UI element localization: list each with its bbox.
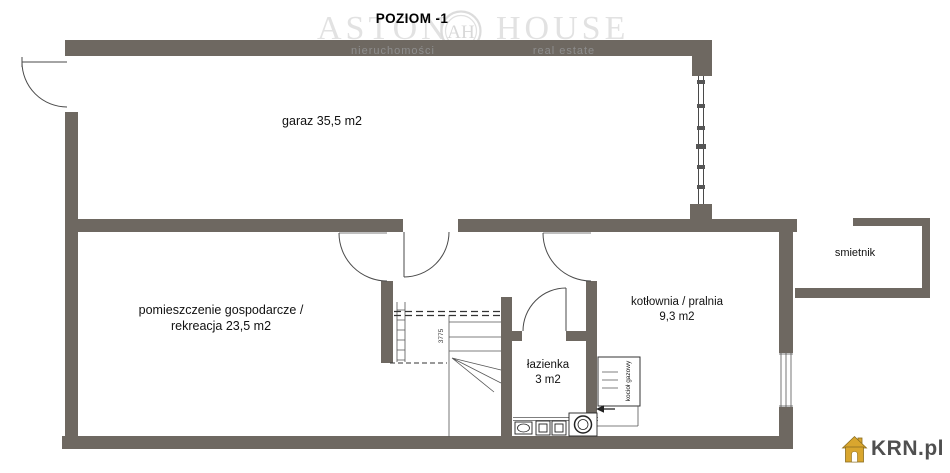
- wall-right-lower: [779, 407, 793, 436]
- gas-boiler-label: kocioł gazowy: [625, 360, 632, 401]
- stair-winders: [452, 358, 501, 392]
- watermark-tagline-right: real estate: [533, 45, 595, 57]
- label-garage: garaz 35,5 m2: [282, 113, 362, 129]
- window-right-wall: [779, 353, 793, 407]
- garage-door-jamb-bottom: [690, 204, 712, 219]
- stair-upper-flight-hatches: [397, 310, 405, 360]
- door-hall-boiler: [543, 233, 591, 281]
- label-boiler-line1: kotłownia / pralnia: [631, 295, 723, 310]
- label-boiler-laundry: kotłownia / pralnia 9,3 m2: [631, 295, 723, 325]
- gas-boiler-unit: kocioł gazowy: [596, 357, 640, 426]
- door-exterior-top-left: [22, 57, 67, 107]
- label-utility-line2: rekreacja 23,5 m2: [139, 318, 304, 334]
- house-icon: [841, 433, 868, 464]
- wall-mid-right: [458, 219, 797, 232]
- floorplan-svg: 3775 kocioł gazowy: [0, 0, 950, 473]
- garage-gate-ticks: [696, 80, 706, 189]
- door-hall-utility: [339, 233, 387, 281]
- appliance-2-inner: [555, 424, 563, 432]
- wall-bottom: [62, 436, 793, 449]
- site-logo-text: KRN.pl: [871, 437, 944, 461]
- wall-bathroom-boiler: [586, 281, 597, 417]
- watermark-tagline-left: nieruchomości: [351, 45, 435, 57]
- floorplan-page: ASTON HOUSE AH: [0, 0, 950, 473]
- wall-utility-hall: [381, 281, 393, 363]
- gas-boiler-box: [598, 357, 640, 406]
- label-utility: pomieszczenie gospodarcze / rekreacja 23…: [139, 302, 304, 334]
- stair-headroom-dashed: [394, 312, 500, 316]
- wall-left: [65, 112, 78, 448]
- appliance-1-inner: [539, 424, 547, 432]
- wall-mid-left: [78, 219, 403, 232]
- wall-right-upper: [779, 228, 793, 353]
- doors: [22, 57, 591, 331]
- wall-trash-top: [853, 218, 930, 226]
- door-bathroom: [523, 288, 566, 331]
- page-title: POZIOM -1: [376, 11, 449, 27]
- door-garage-hall: [404, 232, 449, 277]
- wall-trash-right: [922, 218, 930, 292]
- label-bathroom-line1: łazienka: [527, 358, 569, 373]
- stair-treads: [449, 322, 501, 351]
- wall-bathroom-north-left: [501, 331, 522, 341]
- label-bathroom-line2: 3 m2: [527, 373, 569, 388]
- garage-gate-lines: [699, 76, 704, 204]
- label-bathroom: łazienka 3 m2: [527, 358, 569, 388]
- stair-dimension-text: 3775: [438, 328, 445, 343]
- label-trash-shed: smietnik: [835, 245, 875, 261]
- walls: [62, 40, 930, 449]
- label-utility-line1: pomieszczenie gospodarcze /: [139, 302, 304, 318]
- wall-bathroom-north-right: [566, 331, 597, 341]
- garage-gate: [696, 76, 706, 204]
- wall-bathroom-west: [501, 297, 512, 436]
- site-logo: KRN.pl: [841, 433, 944, 464]
- label-boiler-line2: 9,3 m2: [631, 310, 723, 325]
- garage-door-jamb-top: [692, 56, 712, 76]
- wall-trash-bottom: [795, 288, 930, 298]
- staircase: 3775: [390, 302, 501, 437]
- bathroom-fixtures: [513, 413, 598, 436]
